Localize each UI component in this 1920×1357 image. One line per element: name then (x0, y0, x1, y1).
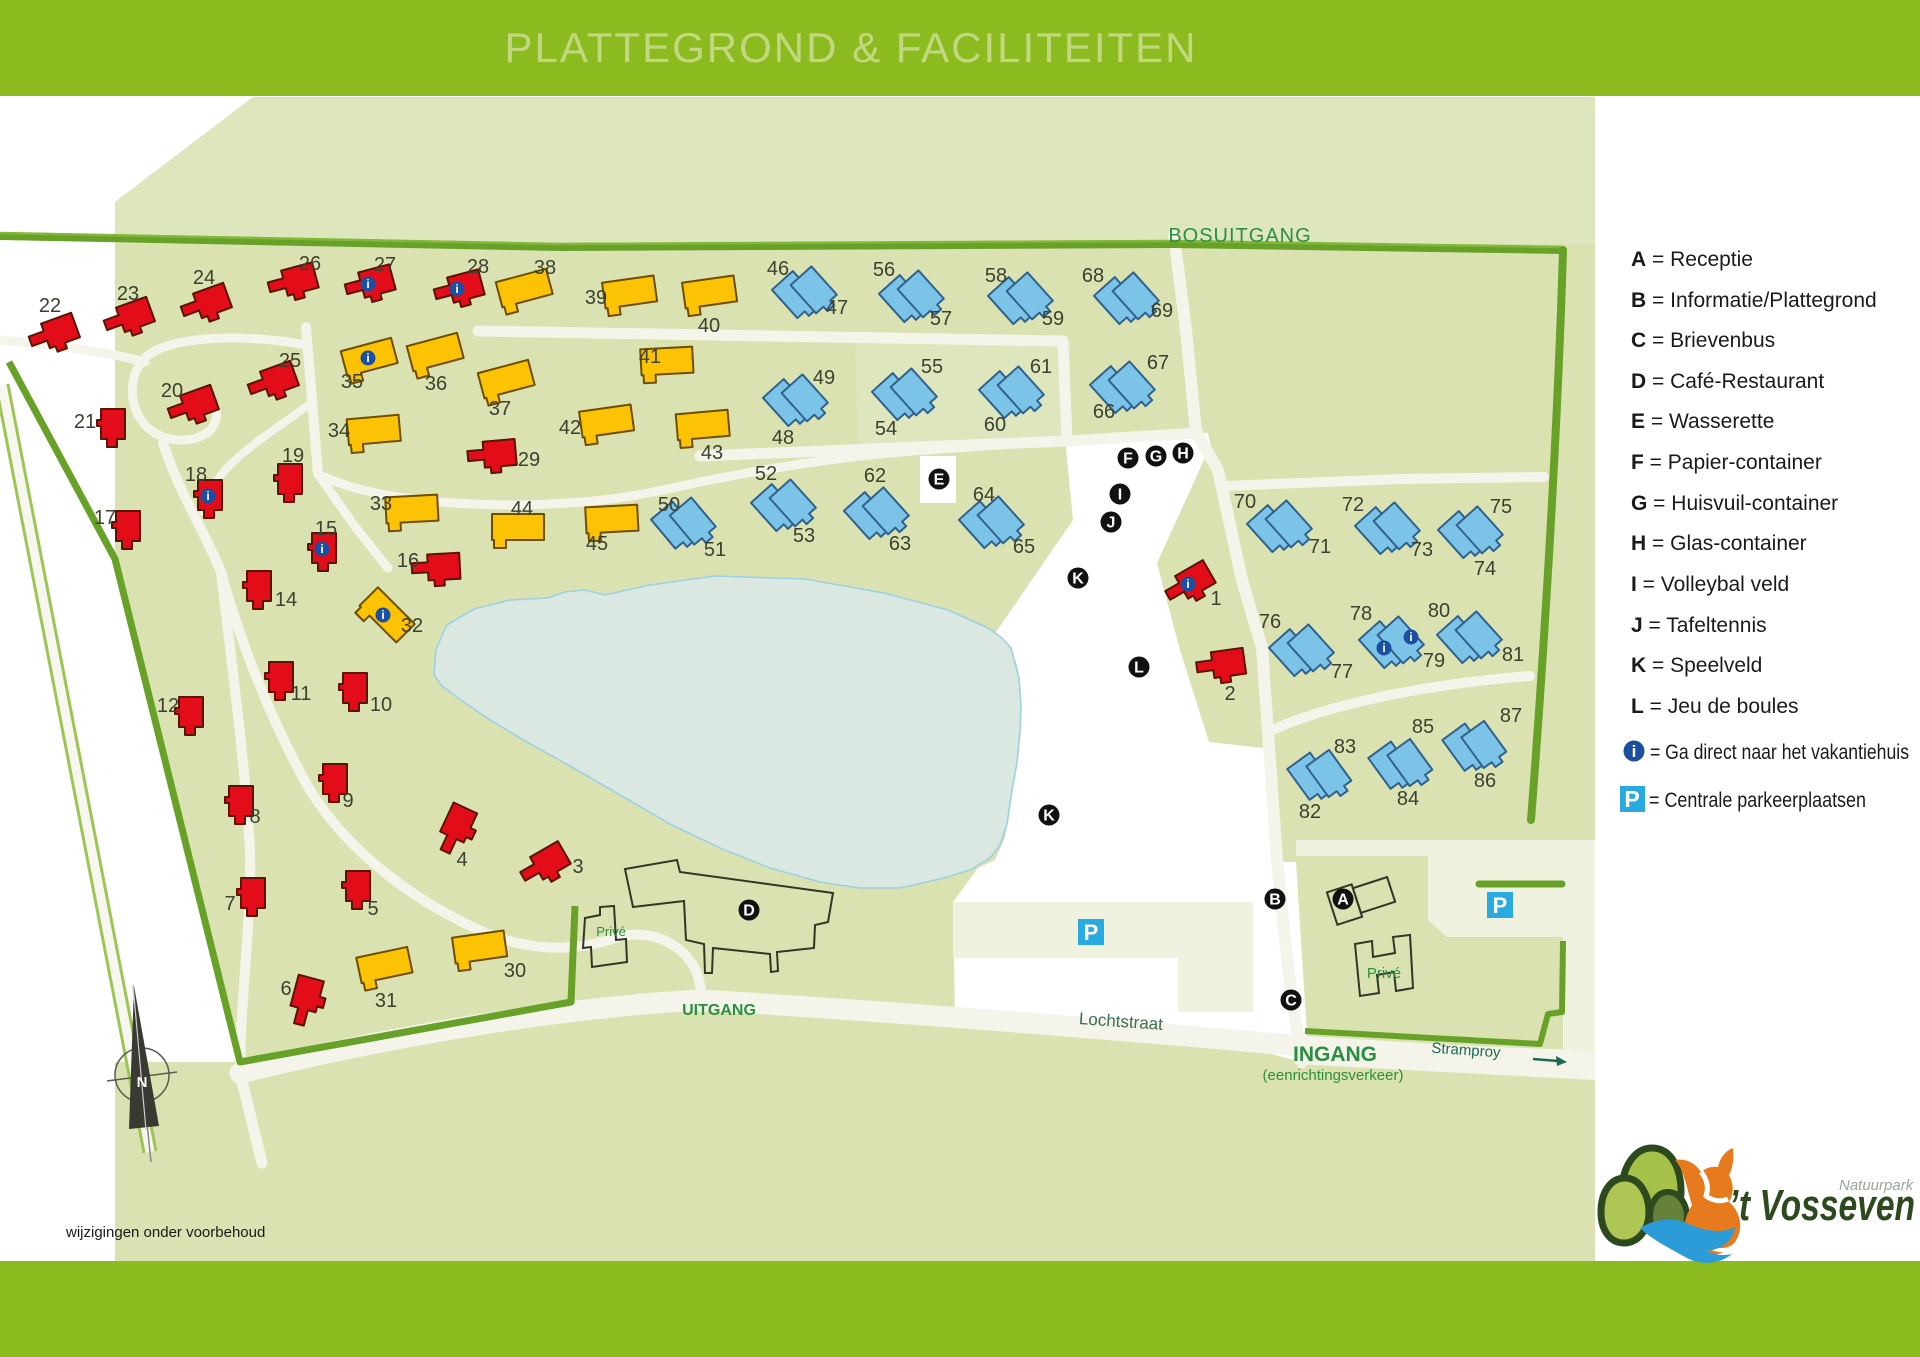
svg-text:21: 21 (74, 411, 96, 433)
svg-text:78: 78 (1350, 603, 1372, 625)
svg-text:i: i (1409, 630, 1412, 644)
svg-text:33: 33 (370, 493, 392, 515)
svg-text:76: 76 (1259, 611, 1281, 633)
svg-text:K: K (1043, 808, 1055, 825)
svg-text:85: 85 (1412, 716, 1434, 738)
svg-text:44: 44 (511, 498, 533, 520)
svg-text:18: 18 (185, 464, 207, 486)
svg-text:30: 30 (504, 960, 526, 982)
svg-text:9: 9 (342, 790, 353, 812)
svg-text:66: 66 (1093, 401, 1115, 423)
svg-text:10: 10 (370, 694, 392, 716)
svg-text:15: 15 (315, 518, 337, 540)
svg-text:57: 57 (930, 308, 952, 330)
svg-text:B: B (1269, 892, 1281, 909)
svg-text:70: 70 (1234, 491, 1256, 513)
svg-text:65: 65 (1013, 536, 1035, 558)
svg-text:48: 48 (772, 427, 794, 449)
svg-text:i: i (1632, 742, 1637, 761)
svg-text:L = Jeu de boules: L = Jeu de boules (1631, 695, 1799, 718)
svg-text:Privé: Privé (596, 924, 626, 939)
svg-text:4: 4 (456, 849, 467, 871)
svg-text:38: 38 (534, 257, 556, 279)
svg-text:83: 83 (1334, 736, 1356, 758)
svg-text:INGANG: INGANG (1293, 1043, 1377, 1066)
svg-text:14: 14 (275, 589, 297, 611)
svg-text:63: 63 (889, 533, 911, 555)
svg-text:N: N (137, 1074, 148, 1091)
svg-text:51: 51 (704, 539, 726, 561)
svg-text:I: I (1118, 487, 1122, 504)
svg-text:BOSUITGANG: BOSUITGANG (1168, 225, 1311, 247)
svg-text:12: 12 (157, 695, 179, 717)
svg-text:73: 73 (1411, 539, 1433, 561)
svg-text:F = Papier-container: F = Papier-container (1631, 451, 1822, 474)
svg-text:37: 37 (489, 398, 511, 420)
svg-text:G = Huisvuil-container: G = Huisvuil-container (1631, 492, 1838, 515)
svg-text:2: 2 (1224, 683, 1235, 705)
svg-text:i: i (366, 277, 369, 291)
svg-text:53: 53 (793, 525, 815, 547)
svg-text:= Centrale parkeerplaatsen: = Centrale parkeerplaatsen (1649, 789, 1866, 812)
svg-text:5: 5 (367, 898, 378, 920)
svg-text:H = Glas-container: H = Glas-container (1631, 532, 1807, 555)
svg-text:29: 29 (518, 449, 540, 471)
svg-text:42: 42 (559, 417, 581, 439)
svg-text:17: 17 (94, 507, 116, 529)
svg-text:34: 34 (328, 420, 350, 442)
svg-text:i: i (320, 542, 323, 556)
svg-text:I = Volleybal veld: I = Volleybal veld (1631, 573, 1789, 596)
svg-text:69: 69 (1151, 300, 1173, 322)
svg-text:61: 61 (1030, 356, 1052, 378)
svg-text:40: 40 (698, 315, 720, 337)
svg-text:Privé: Privé (1367, 965, 1401, 982)
svg-text:Natuurpark: Natuurpark (1839, 1177, 1915, 1194)
svg-text:50: 50 (658, 494, 680, 516)
svg-text:36: 36 (425, 373, 447, 395)
svg-text:43: 43 (701, 442, 723, 464)
svg-text:28: 28 (467, 256, 489, 278)
svg-text:C: C (1285, 993, 1297, 1010)
svg-text:19: 19 (282, 445, 304, 467)
svg-text:6: 6 (280, 978, 291, 1000)
svg-text:16: 16 (397, 550, 419, 572)
svg-text:72: 72 (1342, 494, 1364, 516)
svg-text:P: P (1084, 920, 1099, 945)
svg-text:35: 35 (341, 371, 363, 393)
svg-text:77: 77 (1331, 661, 1353, 683)
svg-text:C = Brievenbus: C = Brievenbus (1631, 329, 1775, 352)
svg-text:26: 26 (299, 253, 321, 275)
svg-text:58: 58 (985, 265, 1007, 287)
svg-text:J: J (1107, 515, 1116, 532)
svg-text:F: F (1123, 451, 1133, 468)
svg-text:55: 55 (921, 356, 943, 378)
svg-text:74: 74 (1474, 558, 1496, 580)
svg-text:i: i (381, 608, 384, 622)
svg-text:P: P (1624, 786, 1639, 812)
svg-text:23: 23 (117, 283, 139, 305)
svg-text:UITGANG: UITGANG (682, 1002, 756, 1019)
svg-text:P: P (1493, 893, 1508, 918)
svg-text:G: G (1150, 449, 1162, 466)
svg-text:25: 25 (279, 350, 301, 372)
svg-text:24: 24 (193, 267, 215, 289)
svg-text:i: i (206, 489, 209, 503)
svg-text:K: K (1072, 571, 1084, 588)
svg-text:8: 8 (249, 806, 260, 828)
svg-text:68: 68 (1082, 265, 1104, 287)
svg-text:46: 46 (767, 258, 789, 280)
svg-text:67: 67 (1147, 352, 1169, 374)
svg-text:56: 56 (873, 259, 895, 281)
svg-text:79: 79 (1423, 650, 1445, 672)
svg-text:47: 47 (826, 297, 848, 319)
svg-text:31: 31 (375, 990, 397, 1012)
svg-text:D: D (743, 903, 755, 920)
svg-text:39: 39 (585, 287, 607, 309)
svg-text:(eenrichtingsverkeer): (eenrichtingsverkeer) (1263, 1067, 1404, 1084)
svg-text:41: 41 (639, 346, 661, 368)
svg-text:i: i (1186, 577, 1189, 591)
svg-text:7: 7 (224, 893, 235, 915)
svg-text:D = Café-Restaurant: D = Café-Restaurant (1631, 370, 1824, 393)
svg-text:27: 27 (374, 254, 396, 276)
svg-text:32: 32 (401, 615, 423, 637)
svg-text:60: 60 (984, 414, 1006, 436)
svg-text:54: 54 (875, 418, 897, 440)
svg-text:i: i (455, 282, 458, 296)
svg-text:49: 49 (813, 367, 835, 389)
svg-text:PLATTEGROND & FACILITEITEN: PLATTEGROND & FACILITEITEN (505, 24, 1198, 71)
svg-text:i: i (1382, 641, 1385, 655)
svg-text:A: A (1337, 892, 1349, 909)
svg-text:45: 45 (586, 533, 608, 555)
svg-text:52: 52 (755, 463, 777, 485)
svg-text:= Ga direct naar het vakantieh: = Ga direct naar het vakantiehuis (1650, 741, 1909, 764)
svg-text:71: 71 (1309, 536, 1331, 558)
svg-text:A = Receptie: A = Receptie (1631, 248, 1753, 271)
svg-text:3: 3 (572, 856, 583, 878)
svg-text:K = Speelveld: K = Speelveld (1631, 654, 1762, 677)
svg-text:59: 59 (1042, 308, 1064, 330)
svg-text:11: 11 (291, 683, 312, 705)
svg-text:80: 80 (1428, 600, 1450, 622)
svg-text:H: H (1177, 446, 1189, 463)
svg-text:81: 81 (1502, 644, 1524, 666)
svg-text:82: 82 (1299, 801, 1321, 823)
svg-text:L: L (1134, 660, 1144, 677)
svg-text:86: 86 (1474, 770, 1496, 792)
svg-text:84: 84 (1397, 788, 1419, 810)
svg-text:E = Wasserette: E = Wasserette (1631, 410, 1774, 433)
svg-text:i: i (366, 351, 369, 365)
svg-text:75: 75 (1490, 496, 1512, 518)
svg-text:J = Tafeltennis: J = Tafeltennis (1631, 614, 1767, 637)
svg-text:20: 20 (161, 380, 183, 402)
svg-text:64: 64 (973, 484, 995, 506)
svg-text:1: 1 (1210, 588, 1221, 610)
svg-text:E: E (934, 472, 945, 489)
svg-text:22: 22 (39, 295, 61, 317)
svg-text:62: 62 (864, 465, 886, 487)
svg-text:87: 87 (1500, 705, 1522, 727)
svg-text:B = Informatie/Plattegrond: B = Informatie/Plattegrond (1631, 289, 1877, 312)
svg-text:wijzigingen onder voorbehoud: wijzigingen onder voorbehoud (65, 1224, 265, 1241)
